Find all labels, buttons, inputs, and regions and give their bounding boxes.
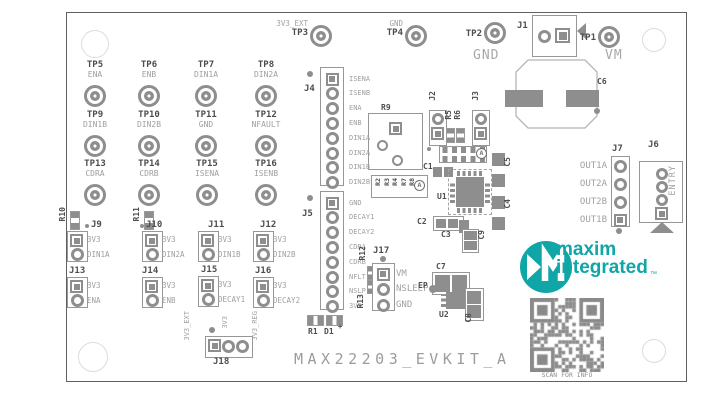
header-ref-J5: J5 <box>302 209 313 219</box>
pad-square <box>201 234 214 247</box>
u1-pins-bottom <box>457 208 483 213</box>
r9-pad-round-2 <box>392 155 403 166</box>
pad-round <box>614 178 627 191</box>
label-C8: C8 <box>464 313 473 323</box>
label-R3: R3 <box>383 178 391 186</box>
label-R1: R1 <box>308 327 318 336</box>
c8-pad-1 <box>467 291 481 304</box>
jumper-ref-J16: J16 <box>255 266 271 276</box>
label-C5: C5 <box>503 157 512 167</box>
j18-label-3v3: 3V3 <box>221 316 229 329</box>
label-R12: R12 <box>358 246 367 260</box>
pin-label: DECAY2 <box>349 228 374 236</box>
r10-body <box>70 211 80 230</box>
label-R11: R11 <box>132 207 141 221</box>
pin-label: DIN2B <box>349 178 370 186</box>
jumper-ref-J14: J14 <box>142 266 158 276</box>
jumper-top-label: 3V3 <box>162 235 176 244</box>
test-point-TP2 <box>484 22 506 44</box>
label-D1: D1 <box>324 327 334 336</box>
pad-round <box>326 211 339 224</box>
pad-round <box>377 283 390 296</box>
j2-pad-round <box>432 113 444 125</box>
j6-arrow-icon <box>650 222 674 233</box>
j6-pad-3 <box>656 194 668 206</box>
label-R7: R7 <box>400 178 408 186</box>
gnd-net-label: GND <box>473 48 499 63</box>
jumper-top-label: 3V3 <box>162 281 176 290</box>
board: J1 A A <box>0 0 719 405</box>
header-ref-J4: J4 <box>304 84 315 94</box>
jumper-top-label: 3V3 <box>273 281 287 290</box>
u2-body <box>446 292 465 309</box>
c3-pad-1 <box>464 231 477 240</box>
tp-signal: GND <box>343 19 403 28</box>
pad-round <box>326 241 339 254</box>
tp-ref: TP8 <box>231 60 301 70</box>
tp-signal: ISENB <box>231 169 301 178</box>
c2-pad-2 <box>448 219 458 228</box>
assembly-marker-2: A <box>476 148 487 159</box>
j18-pad-round-1 <box>222 340 235 353</box>
label-U2: U2 <box>439 310 449 319</box>
r5-body <box>446 128 455 143</box>
pin1-dot <box>307 195 313 201</box>
jumper-top-label: 3V3 <box>218 280 232 289</box>
pad-round <box>326 102 339 115</box>
logo-trademark: ™ <box>650 271 657 278</box>
r9-pad-square <box>389 122 402 135</box>
pin-label: GND <box>349 199 362 207</box>
jumper-ref-J9: J9 <box>91 220 102 230</box>
c3-pad-2 <box>464 241 477 250</box>
mounting-hole-bottom-right <box>642 339 666 363</box>
j18-dot <box>209 327 215 333</box>
test-point-TP9 <box>84 135 106 157</box>
u1-pins-right <box>485 181 490 203</box>
pad-round <box>326 87 339 100</box>
jumper-bottom-label: DIN2A <box>162 250 185 259</box>
mounting-hole-bottom-left <box>78 342 108 372</box>
pad-round <box>326 147 339 160</box>
r1-body <box>307 315 324 326</box>
pad-round <box>326 300 339 313</box>
c6-pad-right <box>566 90 599 107</box>
jumper-bottom-label: DIN1A <box>87 250 110 259</box>
tp-labels-TP16: TP16ISENB <box>231 159 301 178</box>
test-point-TP12 <box>255 135 277 157</box>
pad-round <box>202 293 215 306</box>
label-C3: C3 <box>441 230 451 239</box>
j9-dot <box>85 224 89 228</box>
jumper-top-label: 3V3 <box>87 235 101 244</box>
j1-ref: J1 <box>517 21 528 31</box>
label-R2: R2 <box>374 178 382 186</box>
r6-body <box>456 128 465 143</box>
j18-pad-square <box>208 339 221 352</box>
pad-round <box>326 161 339 174</box>
jumper-bottom-label: ENA <box>87 296 101 305</box>
c2-pad-1 <box>436 219 446 228</box>
r9-pad-round-1 <box>377 140 388 151</box>
pad-square <box>145 234 158 247</box>
j18-ref: J18 <box>213 357 229 367</box>
label-R10: R10 <box>58 207 67 221</box>
label-U1: U1 <box>437 192 447 201</box>
pad-round <box>326 176 339 189</box>
pad-square <box>70 234 83 247</box>
tp-ref: TP16 <box>231 159 301 169</box>
tp-signal: DIN2A <box>231 70 301 79</box>
test-point-TP7 <box>195 85 217 107</box>
tp-signal: 3V3_EXT <box>248 19 308 28</box>
pin-label: ISENB <box>349 89 370 97</box>
label-R5: R5 <box>444 110 453 120</box>
pad-round <box>326 132 339 145</box>
jumper-top-label: 3V3 <box>218 235 232 244</box>
j10-dot <box>140 224 144 228</box>
tp-label-TP2: TP2 <box>422 29 482 39</box>
label-J3: J3 <box>471 91 480 101</box>
pin-label: NFLT <box>349 273 366 281</box>
pin-label: ENB <box>349 119 362 127</box>
tp-ref: TP3 <box>248 28 308 38</box>
pin-label: DIN1B <box>349 163 370 171</box>
pin1-dot <box>380 256 386 262</box>
pad-square <box>256 234 269 247</box>
header-ref-J17: J17 <box>373 246 389 256</box>
qr-code <box>530 298 604 372</box>
j18-label-3v3-ext: 3V3_EXT <box>183 311 191 341</box>
label-C7: C7 <box>436 262 446 271</box>
pad-square <box>256 280 269 293</box>
pad-round <box>202 248 215 261</box>
test-point-TP6 <box>138 85 160 107</box>
pad-square <box>614 214 627 227</box>
jumper-bottom-label: DECAY2 <box>273 296 300 305</box>
jumper-ref-J12: J12 <box>260 220 276 230</box>
jumper-ref-J15: J15 <box>201 265 217 275</box>
pin-label: OUT1B <box>552 215 607 225</box>
test-point-TP8 <box>255 85 277 107</box>
test-point-TP5 <box>84 85 106 107</box>
jumper-bottom-label: DECAY1 <box>218 295 245 304</box>
ep-dot <box>429 285 437 293</box>
test-point-TP1 <box>598 26 620 48</box>
test-point-TP16 <box>255 184 277 206</box>
j2-dot <box>427 147 431 151</box>
c5-pad-2 <box>492 174 505 187</box>
pin-label: GND <box>396 300 412 310</box>
pad-round <box>257 248 270 261</box>
pad-round <box>71 248 84 261</box>
j6-pad-square <box>655 207 668 220</box>
label-R6: R6 <box>453 110 462 120</box>
pin1-dot <box>616 228 622 234</box>
label-J2: J2 <box>428 91 437 101</box>
pin-label: DECAY1 <box>349 213 374 221</box>
pad-square <box>377 268 390 281</box>
tp-labels-TP12: TP12NFAULT <box>231 110 301 129</box>
header-ref-J7: J7 <box>612 144 623 154</box>
pin-label: VM <box>396 269 407 279</box>
jumper-bottom-label: DIN1B <box>218 250 241 259</box>
pad-round <box>257 294 270 307</box>
pad-square <box>70 280 83 293</box>
j3-pad-round <box>475 113 487 125</box>
j18-pad-round-2 <box>236 340 249 353</box>
tp-labels-TP8: TP8DIN2A <box>231 60 301 79</box>
u1-body <box>456 177 484 207</box>
pin-label: DIN1A <box>349 134 370 142</box>
c6-polarity-dot <box>594 108 600 114</box>
pad-round <box>146 248 159 261</box>
test-point-TP13 <box>84 184 106 206</box>
tp-labels-TP3: 3V3_EXTTP3 <box>248 19 308 38</box>
label-R13: R13 <box>356 294 365 308</box>
label-+: + <box>338 323 342 331</box>
board-title: MAX22203_EVKIT_A <box>294 350 511 368</box>
pad-square <box>326 197 339 210</box>
pad-round <box>71 294 84 307</box>
pad-square <box>201 279 214 292</box>
pad-round <box>326 117 339 130</box>
tp-label-TP1: TP1 <box>536 33 596 43</box>
label-R8: R8 <box>408 178 416 186</box>
pin1-dot <box>307 71 313 77</box>
pin-label: DIN2A <box>349 149 370 157</box>
j2-pad-square <box>431 127 444 140</box>
pad-round <box>326 256 339 269</box>
pad-round <box>146 294 159 307</box>
tp-ref: TP4 <box>343 28 403 38</box>
test-point-TP15 <box>196 184 218 206</box>
label-C4: C4 <box>503 199 512 209</box>
jumper-ref-J10: J10 <box>146 220 162 230</box>
jumper-ref-J11: J11 <box>208 220 224 230</box>
pin-label: OUT2B <box>552 197 607 207</box>
pad-round <box>614 196 627 209</box>
jumper-ref-J13: J13 <box>69 266 85 276</box>
u2-pins-left <box>441 295 446 307</box>
test-point-TP11 <box>195 135 217 157</box>
pad-round <box>326 285 339 298</box>
label-C1: C1 <box>423 162 433 171</box>
u1-pins-left <box>450 181 455 203</box>
j6-pad-2 <box>656 181 668 193</box>
j6-entry-label: ENTRY <box>668 165 678 196</box>
label-R9: R9 <box>381 103 391 112</box>
jumper-top-label: 3V3 <box>273 235 287 244</box>
test-point-TP10 <box>138 135 160 157</box>
pin-label: ISENA <box>349 75 370 83</box>
jumper-top-label: 3V3 <box>87 281 101 290</box>
j6-ref: J6 <box>648 140 659 150</box>
pad-round <box>377 299 390 312</box>
label-EP: EP <box>418 281 428 290</box>
j18-label-3v3-reg: 3V3_REG <box>251 311 259 341</box>
pin-label: OUT2A <box>552 179 607 189</box>
pad-round <box>326 271 339 284</box>
pad-square <box>326 73 339 86</box>
j6-pad-1 <box>656 168 668 180</box>
c1-pad-1 <box>433 167 442 177</box>
tp-signal: NFAULT <box>231 120 301 129</box>
pin-label: OUT1A <box>552 161 607 171</box>
pin-label: ENA <box>349 104 362 112</box>
qr-caption: SCAN FOR INFO <box>527 371 607 379</box>
c4-pad-2 <box>492 217 505 230</box>
pad-round <box>326 226 339 239</box>
pad-round <box>614 160 627 173</box>
u1-pins-top <box>457 171 483 176</box>
jumper-bottom-label: DIN2B <box>273 250 296 259</box>
label-C6: C6 <box>597 77 607 86</box>
test-point-TP14 <box>138 184 160 206</box>
jumper-bottom-label: ENB <box>162 296 176 305</box>
label-R4: R4 <box>391 178 399 186</box>
vm-net-label: VM <box>605 48 623 63</box>
label-C9: C9 <box>477 230 486 240</box>
j3-pad-square <box>474 127 487 140</box>
label-C2: C2 <box>417 217 427 226</box>
c7-pad-1 <box>435 275 450 292</box>
c6-pad-left <box>505 90 543 107</box>
tp-labels-TP4: GNDTP4 <box>343 19 403 38</box>
logo-text-line2: integrated <box>556 258 648 277</box>
tp-ref: TP12 <box>231 110 301 120</box>
test-point-TP3 <box>310 25 332 47</box>
pad-square <box>145 280 158 293</box>
mounting-hole-top-left <box>81 30 109 58</box>
mounting-hole-top-right <box>642 28 666 52</box>
